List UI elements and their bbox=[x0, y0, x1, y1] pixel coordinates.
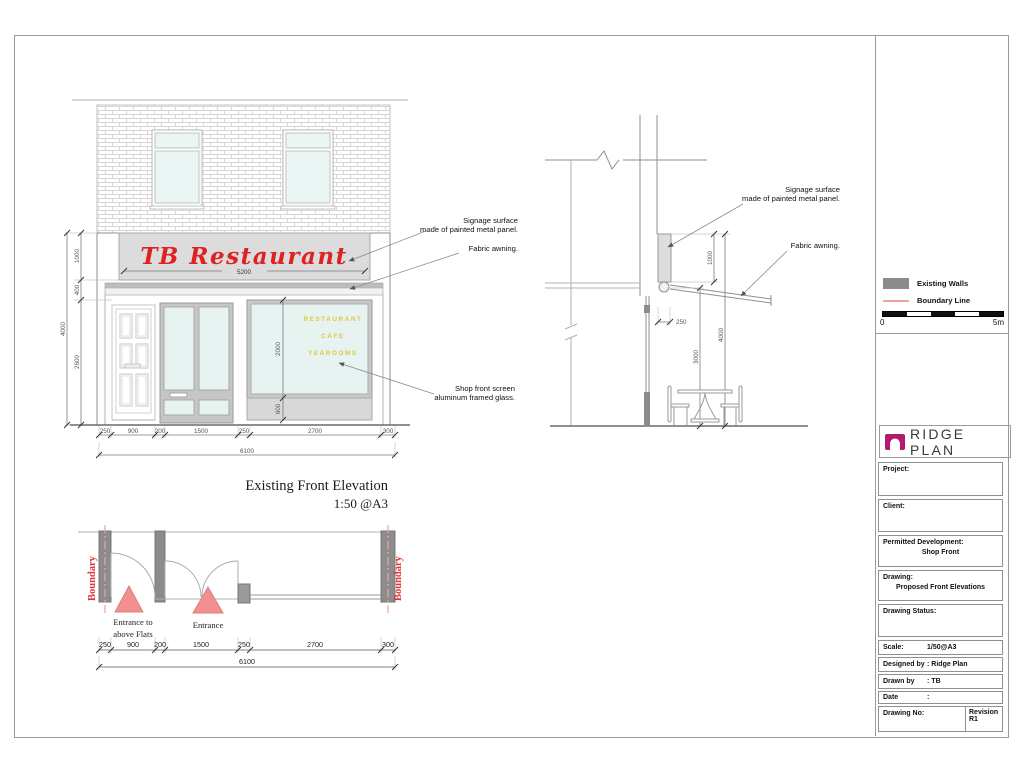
svg-text:300: 300 bbox=[382, 640, 394, 649]
drawing-status-label: Drawing Status: bbox=[879, 605, 1002, 615]
double-door-swing bbox=[165, 561, 238, 597]
svg-text:2700: 2700 bbox=[308, 428, 323, 435]
annotation-signage: Signage surface bbox=[463, 216, 518, 225]
dim-left-chain: 1000 400 2600 4000 bbox=[60, 230, 119, 428]
wall-post bbox=[155, 531, 165, 602]
drawing-sheet-page: { "colors": { "signage_red": "#e02121", … bbox=[0, 0, 1024, 768]
upper-window-left bbox=[150, 130, 204, 209]
wall-swatch bbox=[883, 278, 909, 289]
elevation-drawing: TB Restaurant 5200 bbox=[60, 90, 540, 480]
shopfront-glazing-plan bbox=[250, 595, 381, 599]
boundary-line-swatch bbox=[883, 300, 909, 302]
field-scale: Scale: 1/50@A3 bbox=[878, 640, 1003, 655]
designed-by-value: Ridge Plan bbox=[931, 661, 967, 668]
table-and-chairs bbox=[668, 386, 742, 425]
svg-text:2600: 2600 bbox=[74, 355, 81, 370]
client-label: Client: bbox=[879, 500, 1002, 510]
svg-text:400: 400 bbox=[74, 284, 81, 295]
field-drawing-status: Drawing Status: bbox=[878, 604, 1003, 637]
panel-door bbox=[112, 305, 155, 420]
awning-roller bbox=[659, 282, 669, 292]
entrance-label: Entrance bbox=[193, 620, 224, 630]
revision-label: Revision bbox=[969, 709, 1002, 716]
svg-text:2700: 2700 bbox=[307, 640, 323, 649]
stall-riser bbox=[247, 398, 372, 420]
svg-text:200: 200 bbox=[154, 640, 166, 649]
svg-text:300: 300 bbox=[383, 428, 394, 435]
scale-bar bbox=[882, 311, 1004, 317]
shop-window: RESTAURANT CAFE TEAROOMS bbox=[247, 300, 372, 398]
entrance-flats-label: Entrance to bbox=[113, 617, 152, 627]
permitted-label: Permitted Development: bbox=[879, 536, 1002, 546]
window-text-line1: RESTAURANT bbox=[304, 316, 363, 323]
dim-bottom-chain: 250 900 200 1500 250 2700 300 6100 bbox=[96, 426, 398, 458]
window-text-line2: CAFE bbox=[321, 333, 345, 340]
signage-panel-section bbox=[658, 234, 671, 282]
legend-existing-walls: Existing Walls bbox=[883, 278, 968, 289]
field-drawing: Drawing: Proposed Front Elevations bbox=[878, 570, 1003, 601]
project-label: Project: bbox=[879, 463, 1002, 473]
svg-text:aluminum framed glass.: aluminum framed glass. bbox=[434, 393, 515, 402]
field-drawing-no: Drawing No: Revision R1 bbox=[878, 706, 1003, 732]
window-text-line3: TEAROOMS bbox=[308, 350, 357, 357]
brick-wall bbox=[97, 105, 390, 233]
letter-slot bbox=[170, 393, 187, 397]
annotation-awning: Fabric awning. bbox=[791, 241, 840, 250]
leader-line bbox=[668, 204, 743, 247]
entrance-triangle-shop bbox=[193, 587, 223, 613]
drawn-by-label: Drawn by bbox=[883, 678, 927, 685]
field-client: Client: bbox=[878, 499, 1003, 532]
shopfront-glazing-section bbox=[644, 296, 650, 425]
svg-text:250: 250 bbox=[100, 428, 111, 435]
svg-text:4000: 4000 bbox=[60, 322, 67, 337]
entrance-triangle-flats bbox=[115, 586, 143, 612]
scale-label: Scale: bbox=[883, 644, 927, 651]
svg-text:900: 900 bbox=[128, 428, 139, 435]
svg-text:900: 900 bbox=[127, 640, 139, 649]
svg-text:200: 200 bbox=[155, 428, 166, 435]
signage-text: TB Restaurant bbox=[140, 243, 347, 270]
designed-by-label: Designed by bbox=[883, 661, 927, 668]
svg-text:6100: 6100 bbox=[240, 448, 255, 455]
table-base bbox=[691, 419, 719, 422]
ridge-plan-logo: RIDGE PLAN bbox=[879, 425, 1011, 458]
table-top bbox=[678, 390, 732, 393]
legend-boundary-line: Boundary Line bbox=[883, 296, 970, 305]
upper-window-right bbox=[281, 130, 335, 209]
pier bbox=[238, 584, 250, 603]
scale-bar-labels: 0 5m bbox=[880, 318, 1004, 327]
svg-text:above Flats: above Flats bbox=[113, 629, 153, 639]
arch-icon bbox=[885, 434, 905, 450]
svg-text:made of painted metal panel.: made of painted metal panel. bbox=[742, 194, 840, 203]
svg-text:250: 250 bbox=[676, 319, 687, 326]
plan-dim-chain: 250 900 200 1500 250 2700 300 6100 bbox=[96, 637, 398, 670]
revision-value: R1 bbox=[969, 716, 1002, 723]
revision-cell: Revision R1 bbox=[965, 707, 1002, 731]
letter-plate bbox=[125, 364, 140, 368]
wall-section bbox=[640, 115, 657, 296]
svg-text:1500: 1500 bbox=[193, 640, 209, 649]
annotation-awning: Fabric awning. bbox=[469, 244, 518, 253]
svg-text:600: 600 bbox=[275, 403, 282, 414]
legend-label: Existing Walls bbox=[917, 279, 968, 288]
title-block: Existing Walls Boundary Line 0 5m RIDGE … bbox=[875, 35, 1009, 736]
svg-text:1000: 1000 bbox=[707, 251, 714, 266]
svg-text:1000: 1000 bbox=[74, 249, 81, 264]
field-permitted-development: Permitted Development: Shop Front bbox=[878, 535, 1003, 567]
elevation-title-line1: Existing Front Elevation bbox=[228, 478, 388, 495]
elevation-title: Existing Front Elevation 1:50 @A3 bbox=[228, 478, 388, 512]
svg-text:made of painted metal panel.: made of painted metal panel. bbox=[420, 225, 518, 234]
annotation-glass: Shop front screen bbox=[455, 384, 515, 393]
drawing-label: Drawing: bbox=[879, 571, 1002, 581]
plan-drawing: Boundary Boundary Entrance to above Flat… bbox=[60, 520, 480, 680]
section-annotations: Signage surface made of painted metal pa… bbox=[668, 185, 840, 296]
drawn-by-value: TB bbox=[931, 678, 940, 685]
scale-zero-label: 0 bbox=[880, 318, 884, 327]
annotation-signage: Signage surface bbox=[785, 185, 840, 194]
svg-text:3000: 3000 bbox=[693, 350, 700, 365]
permitted-value: Shop Front bbox=[879, 546, 1002, 556]
scale-max-label: 5m bbox=[993, 318, 1004, 327]
svg-text:4000: 4000 bbox=[718, 328, 725, 343]
svg-text:250: 250 bbox=[239, 428, 250, 435]
break-symbol bbox=[597, 151, 619, 169]
elevation-title-scale: 1:50 @A3 bbox=[228, 496, 388, 512]
titleblock-divider bbox=[876, 333, 1009, 334]
svg-text:1500: 1500 bbox=[194, 428, 209, 435]
section-drawing: 250 1000 3000 4000 Signage surface made … bbox=[540, 95, 850, 440]
leader-line bbox=[741, 251, 787, 296]
svg-text:250: 250 bbox=[99, 640, 111, 649]
drawing-value: Proposed Front Elevations bbox=[879, 581, 1002, 591]
legend-label: Boundary Line bbox=[917, 296, 970, 305]
boundary-label-right: Boundary bbox=[393, 555, 404, 601]
svg-text:2000: 2000 bbox=[275, 342, 282, 357]
glazed-entrance-door bbox=[160, 303, 233, 423]
field-drawn-by: Drawn by : TB bbox=[878, 674, 1003, 689]
date-label: Date bbox=[883, 694, 927, 701]
field-project: Project: bbox=[878, 462, 1003, 496]
field-date: Date : bbox=[878, 691, 1003, 704]
scale-value: 1/50@A3 bbox=[927, 644, 956, 651]
boundary-label-left: Boundary bbox=[87, 555, 98, 601]
svg-text:250: 250 bbox=[238, 640, 250, 649]
signage-panel: TB Restaurant 5200 bbox=[119, 233, 370, 280]
field-designed-by: Designed by : Ridge Plan bbox=[878, 657, 1003, 672]
brand-name: RIDGE PLAN bbox=[910, 426, 1010, 458]
svg-text:5200: 5200 bbox=[237, 269, 252, 276]
svg-text:6100: 6100 bbox=[239, 657, 255, 666]
fabric-awning bbox=[105, 283, 383, 295]
door-swing-flats bbox=[111, 553, 155, 597]
